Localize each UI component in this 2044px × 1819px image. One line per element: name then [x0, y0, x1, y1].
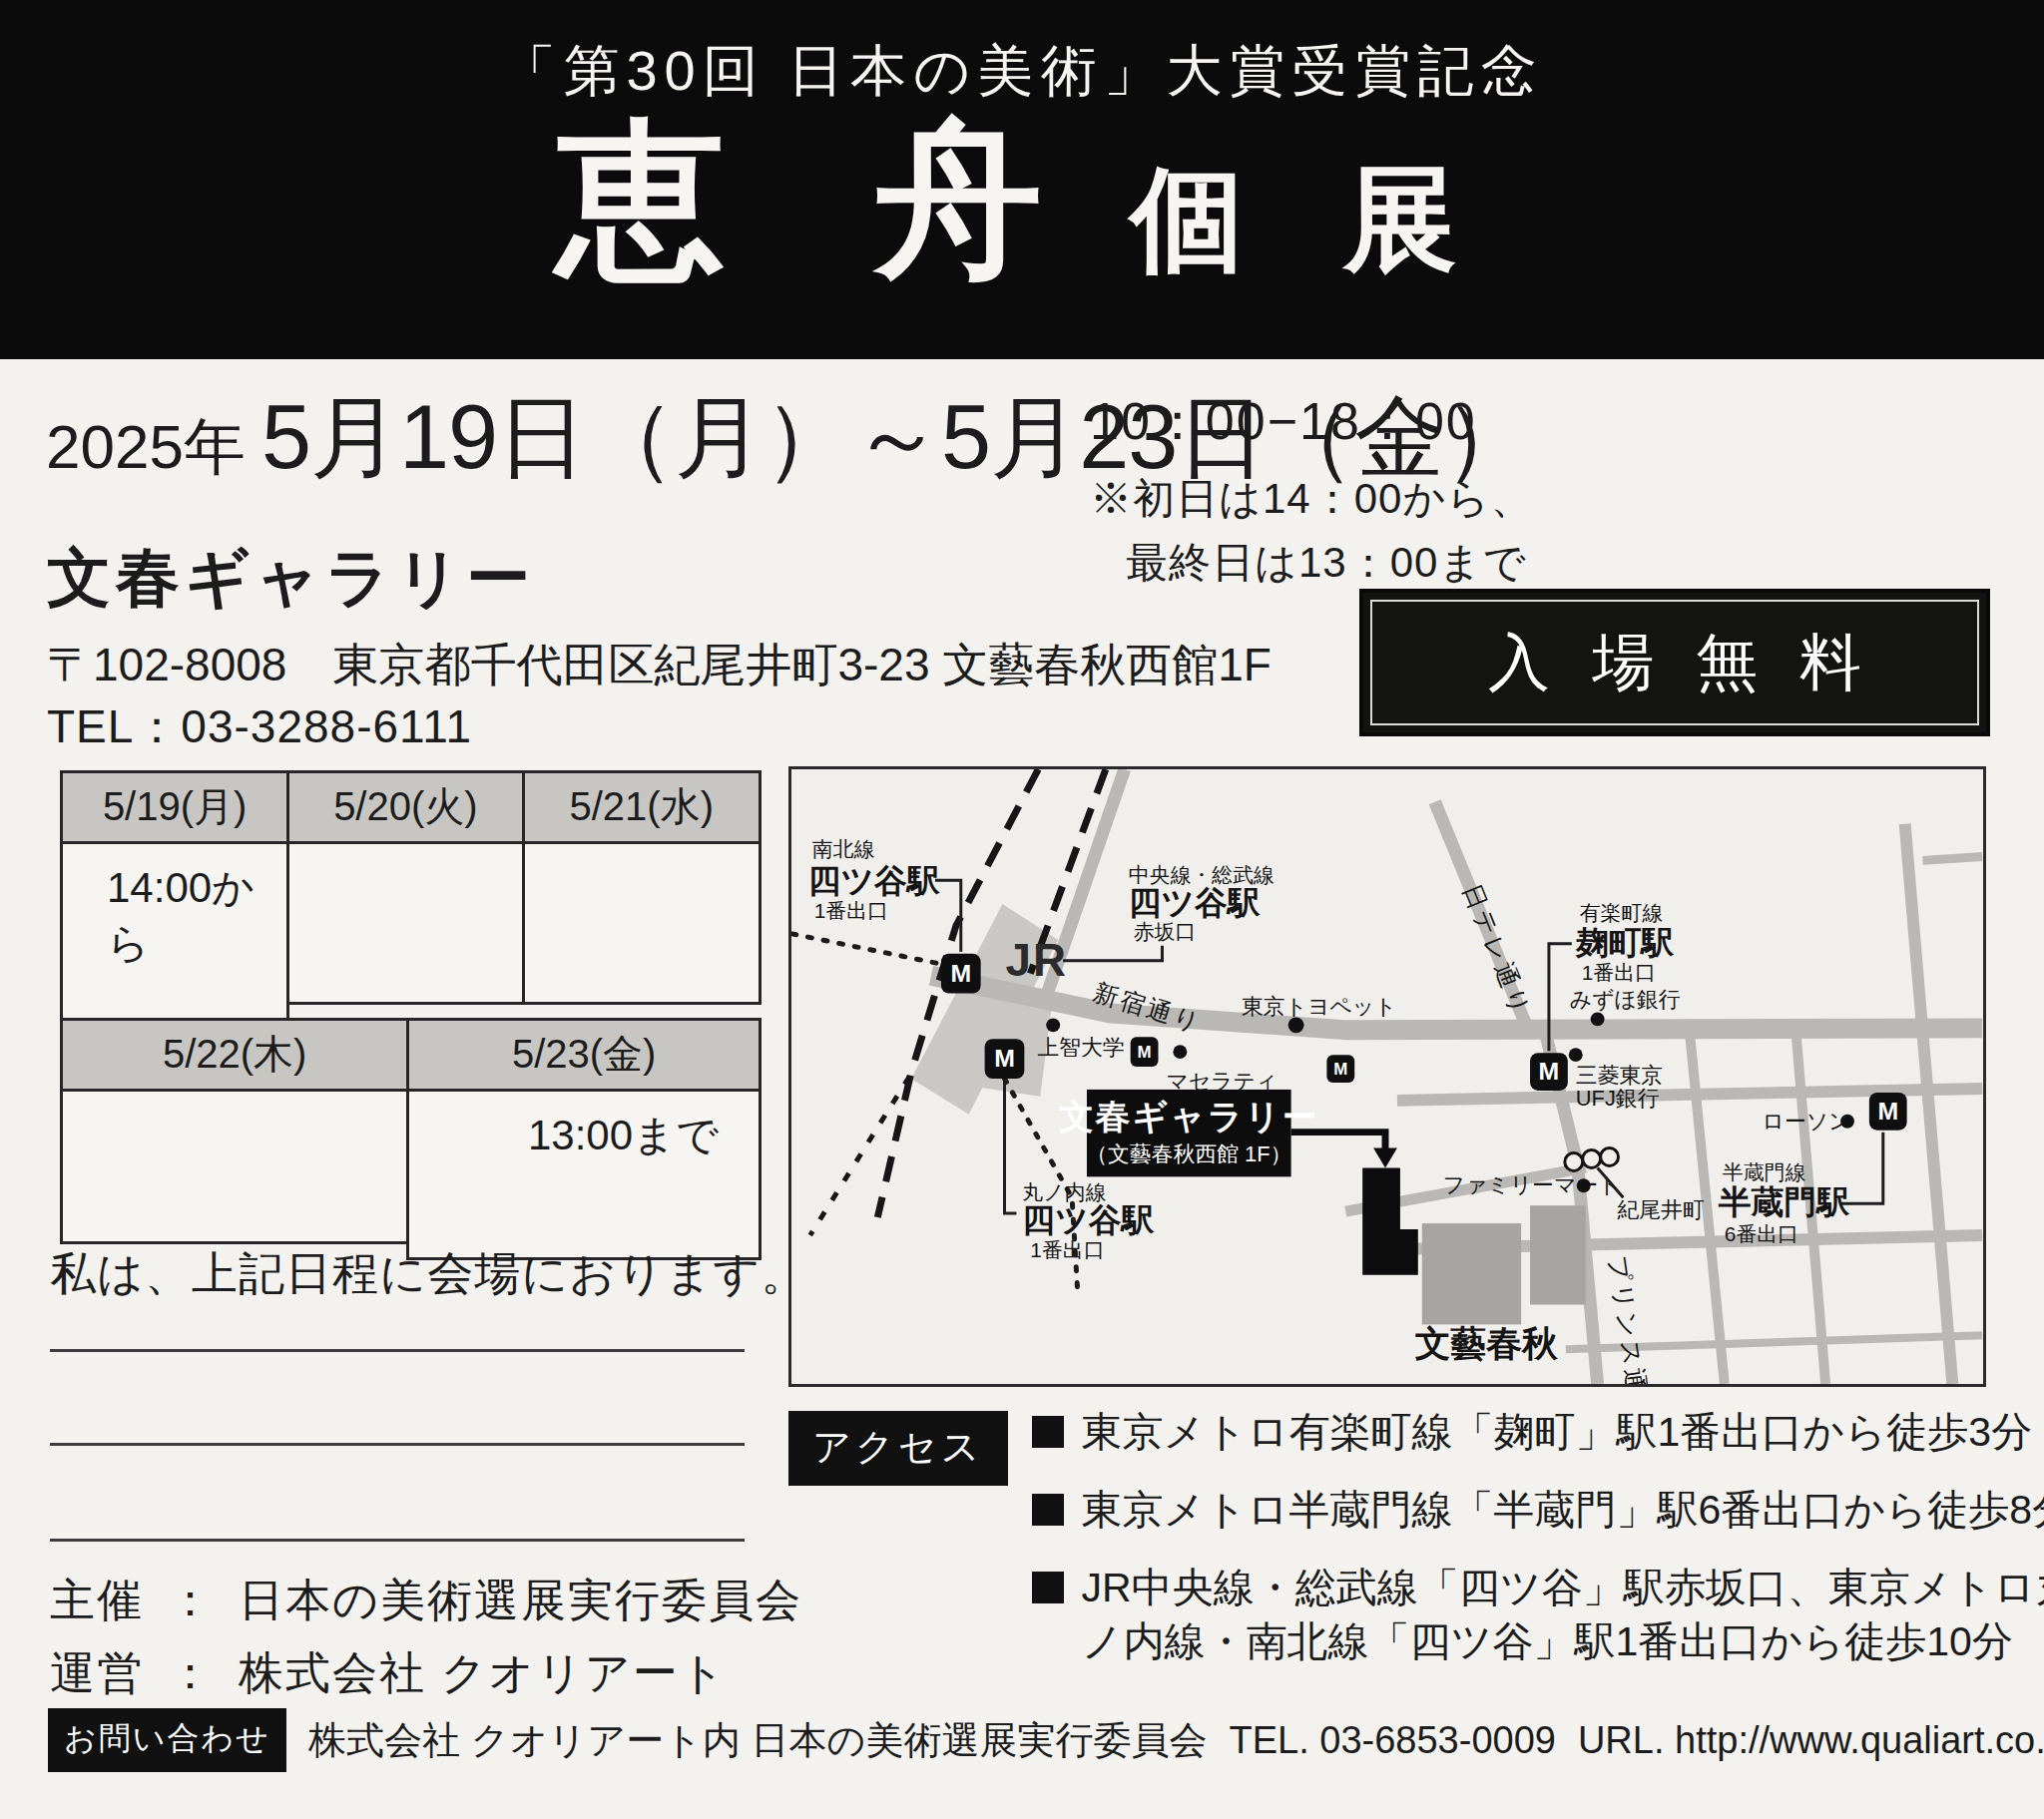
calendar-header: 5/19(月)	[60, 770, 289, 844]
jr-logo: JR	[1005, 935, 1067, 986]
map-station-yotsuya-nanboku: 南北線 四ツ谷駅 1番出口	[808, 837, 961, 951]
svg-text:1番出口: 1番出口	[814, 899, 888, 922]
svg-text:日テレ通り: 日テレ通り	[1458, 880, 1536, 1021]
gallery-pointer-line	[1291, 1133, 1385, 1150]
calendar-cell	[286, 844, 524, 1005]
signature-line	[50, 1539, 745, 1542]
calendar-row2: 5/22(木) 5/23(金) 13:00まで	[60, 1018, 759, 1260]
landmark-dot	[1840, 1115, 1854, 1129]
svg-text:上智大学: 上智大学	[1037, 1035, 1124, 1060]
header-band: 「第30回 日本の美術」大賞受賞記念 恵 舟 個 展	[0, 0, 2044, 359]
svg-text:東京トヨペット: 東京トヨペット	[1242, 994, 1396, 1019]
svg-text:ファミリーマート: ファミリーマート	[1443, 1172, 1621, 1197]
landmark-dot	[1288, 1017, 1304, 1033]
svg-text:中央線・総武線: 中央線・総武線	[1129, 863, 1275, 886]
contact-strip: お問い合わせ 株式会社 クオリアート内 日本の美術選展実行委員会 TEL. 03…	[48, 1708, 2044, 1772]
artist-name-title: 恵 舟	[557, 112, 1089, 287]
calendar-cell	[522, 844, 763, 1005]
landmark-dot	[1569, 1048, 1583, 1062]
svg-text:南北線: 南北線	[812, 837, 875, 860]
svg-text:M: M	[1877, 1098, 1898, 1125]
metro-icon: M	[985, 1039, 1025, 1079]
inquiry-organization: 株式会社 クオリアート内 日本の美術選展実行委員会	[308, 1715, 1207, 1766]
calendar-cell: 13:00まで	[406, 1092, 762, 1260]
inquiry-tel: TEL. 03-6853-0009	[1229, 1719, 1555, 1762]
road-grid-h1	[1923, 856, 1983, 860]
map-station-yotsuya-chuo-sobu: 中央線・総武線 四ツ谷駅 赤坂口	[1063, 863, 1275, 960]
metro-icon: M	[1131, 1037, 1159, 1067]
svg-text:M: M	[1138, 1043, 1152, 1062]
access-item-text: JR中央線・総武線「四ツ谷」駅赤坂口、東京メトロ丸ノ内線・南北線「四ツ谷」駅1番…	[1082, 1561, 2044, 1668]
svg-text:四ツ谷駅: 四ツ谷駅	[1022, 1201, 1155, 1238]
hours-note-first-day: ※初日は14：00から、	[1090, 471, 1533, 527]
station-connector	[1063, 946, 1162, 961]
square-bullet-icon	[1032, 1416, 1064, 1448]
square-bullet-icon	[1032, 1572, 1064, 1603]
exhibition-year: 2025年	[46, 405, 246, 489]
calendar-row1: 5/19(月) 5/20(火) 5/21(水) 14:00から	[60, 770, 759, 1021]
exhibition-flyer: 「第30回 日本の美術」大賞受賞記念 恵 舟 個 展 2025年 5月19日（月…	[0, 0, 2044, 1819]
svg-text:三菱東京: 三菱東京	[1576, 1063, 1663, 1088]
access-item: JR中央線・総武線「四ツ谷」駅赤坂口、東京メトロ丸ノ内線・南北線「四ツ谷」駅1番…	[1032, 1561, 2044, 1668]
svg-text:マセラティ: マセラティ	[1166, 1069, 1277, 1094]
access-map-canvas: M M M M M	[791, 769, 1983, 1384]
operator-value: 株式会社 クオリアート	[239, 1643, 728, 1703]
calendar-cell: 14:00から	[60, 844, 289, 1021]
admission-free-label: 入場無料	[1446, 621, 1903, 704]
svg-text:6番出口: 6番出口	[1725, 1222, 1798, 1245]
building-block	[1530, 1205, 1586, 1304]
station-connector	[1004, 1081, 1016, 1213]
inquiry-badge: お問い合わせ	[48, 1708, 286, 1772]
svg-text:半蔵門駅: 半蔵門駅	[1718, 1183, 1850, 1220]
calendar-header: 5/21(水)	[522, 770, 763, 844]
venue-tel: TEL：03-3288-6111	[47, 696, 472, 758]
metro-icon: M	[1530, 1053, 1568, 1091]
svg-text:1番出口: 1番出口	[1030, 1238, 1104, 1261]
organizer-row: 運営 ： 株式会社 クオリアート	[50, 1643, 802, 1703]
svg-text:四ツ谷駅: 四ツ谷駅	[808, 862, 941, 899]
organizer-label: 主催	[50, 1571, 144, 1630]
map-bungeishunju-buildings: 文藝春秋	[1415, 1205, 1586, 1364]
map-station-hanzomon: 半蔵門線 半蔵門駅 6番出口	[1718, 1133, 1883, 1245]
svg-text:1番出口: 1番出口	[1582, 961, 1656, 984]
svg-text:有楽町線: 有楽町線	[1580, 901, 1664, 924]
access-item-text: 東京メトロ半蔵門線「半蔵門」駅6番出口から徒歩8分	[1082, 1483, 2044, 1537]
venue-address: 〒102-8008 東京都千代田区紀尾井町3-23 文藝春秋西館1F	[47, 635, 1272, 696]
calendar-header: 5/23(金)	[406, 1018, 762, 1092]
svg-text:半蔵門線: 半蔵門線	[1723, 1160, 1806, 1183]
svg-text:四ツ谷駅: 四ツ谷駅	[1129, 884, 1262, 921]
building-block	[1422, 1223, 1521, 1324]
signature-line	[50, 1443, 745, 1446]
organizer-row: 主催 ： 日本の美術選展実行委員会	[50, 1571, 802, 1630]
award-subtitle: 「第30回 日本の美術」大賞受賞記念	[0, 0, 2044, 110]
presence-note: 私は、上記日程に会場におります。	[50, 1243, 808, 1305]
svg-text:紀尾井町: 紀尾井町	[1618, 1197, 1706, 1222]
metro-icon: M	[941, 954, 981, 994]
road-shinjuku-dori	[931, 976, 1982, 1031]
access-section: アクセス 東京メトロ有楽町線「麹町」駅1番出口から徒歩3分 東京メトロ半蔵門線「…	[788, 1405, 2044, 1668]
inquiry-url: URL. http://www.qualiart.co.jp	[1578, 1719, 2044, 1762]
calendar-cell	[60, 1092, 409, 1244]
access-item: 東京メトロ半蔵門線「半蔵門」駅6番出口から徒歩8分	[1032, 1483, 2044, 1537]
svg-text:M: M	[1333, 1060, 1347, 1079]
title-row: 恵 舟 個 展	[0, 112, 2044, 287]
access-badge: アクセス	[788, 1411, 1008, 1486]
svg-text:麹町駅: 麹町駅	[1575, 924, 1676, 961]
access-list: 東京メトロ有楽町線「麹町」駅1番出口から徒歩3分 東京メトロ半蔵門線「半蔵門」駅…	[1032, 1405, 2044, 1668]
marunouchi-line-west	[792, 934, 939, 964]
svg-text:文春ギャラリー: 文春ギャラリー	[1059, 1098, 1319, 1136]
organizer-value: 日本の美術選展実行委員会	[239, 1571, 802, 1630]
signature-line	[50, 1349, 745, 1352]
svg-text:M: M	[950, 960, 971, 987]
svg-text:（文藝春秋西館 1F）: （文藝春秋西館 1F）	[1086, 1141, 1291, 1166]
svg-text:M: M	[994, 1045, 1015, 1072]
opening-hours-block: 10：00−18：00 ※初日は14：00から、 最終日は13：00まで	[1090, 387, 1533, 591]
organizer-colon: ：	[168, 1571, 215, 1630]
square-bullet-icon	[1032, 1494, 1064, 1526]
landmark-dot	[1046, 1018, 1060, 1032]
svg-text:M: M	[1539, 1058, 1560, 1085]
operator-colon: ：	[168, 1643, 215, 1703]
svg-text:文藝春秋: 文藝春秋	[1415, 1324, 1558, 1364]
svg-text:プリンス通り: プリンス通り	[1605, 1254, 1655, 1384]
svg-text:ローソン: ローソン	[1763, 1109, 1851, 1134]
landmark-dot	[1173, 1045, 1187, 1059]
venue-name: 文春ギャラリー	[47, 535, 535, 622]
svg-text:みずほ銀行: みずほ銀行	[1570, 987, 1681, 1012]
organizer-block: 主催 ： 日本の美術選展実行委員会 運営 ： 株式会社 クオリアート	[50, 1571, 802, 1703]
svg-text:丸ノ内線: 丸ノ内線	[1022, 1180, 1106, 1203]
landmark-dot	[1577, 1178, 1591, 1192]
svg-text:赤坂口: 赤坂口	[1134, 920, 1197, 943]
hours-note-last-day: 最終日は13：00まで	[1126, 535, 1533, 591]
road-grid-v4	[1905, 824, 1953, 1384]
calendar-header: 5/22(木)	[60, 1018, 409, 1092]
access-map: M M M M M	[788, 766, 1986, 1387]
solo-exhibition-title: 個 展	[1130, 162, 1487, 275]
svg-text:UFJ銀行: UFJ銀行	[1576, 1086, 1660, 1111]
metro-icon: M	[1869, 1093, 1907, 1131]
operator-label: 運営	[50, 1643, 144, 1703]
map-venue-gallery: 文春ギャラリー （文藝春秋西館 1F）	[1059, 1090, 1418, 1275]
opening-hours: 10：00−18：00	[1090, 387, 1533, 457]
access-item-text: 東京メトロ有楽町線「麹町」駅1番出口から徒歩3分	[1082, 1405, 2032, 1459]
svg-text:新宿通り: 新宿通り	[1090, 978, 1205, 1037]
access-item: 東京メトロ有楽町線「麹町」駅1番出口から徒歩3分	[1032, 1405, 2044, 1459]
attendance-calendar: 5/19(月) 5/20(火) 5/21(水) 14:00から 5/22(木) …	[60, 770, 759, 1260]
metro-icon: M	[1326, 1055, 1354, 1083]
gallery-building	[1362, 1167, 1418, 1274]
admission-free-box: 入場無料	[1359, 589, 1990, 736]
jr-track-continuation	[810, 1077, 909, 1235]
calendar-header: 5/20(火)	[286, 770, 524, 844]
gallery-pointer-arrow	[1373, 1148, 1397, 1168]
landmark-dot	[1591, 1012, 1605, 1026]
